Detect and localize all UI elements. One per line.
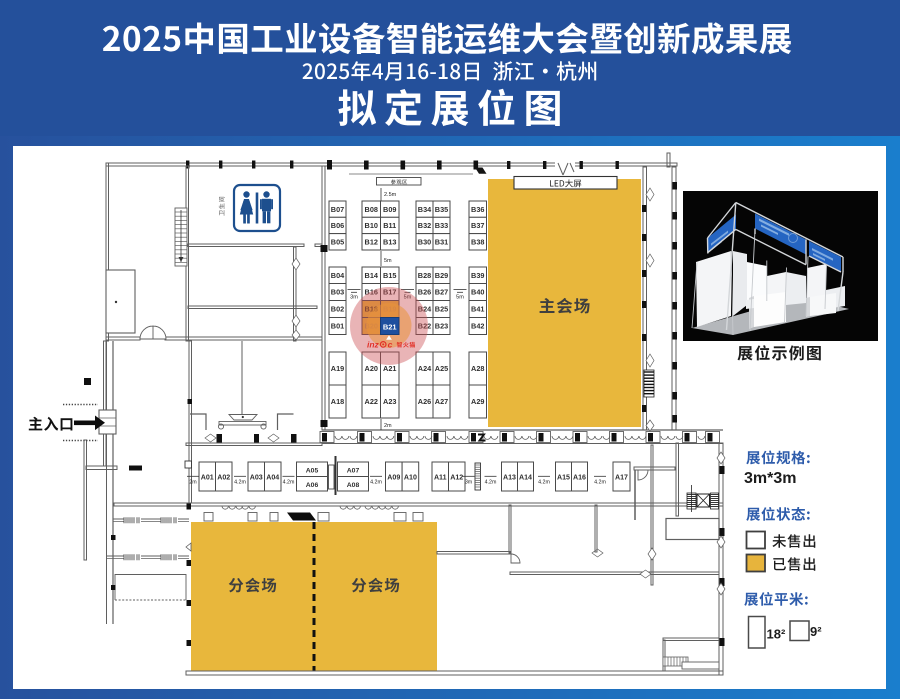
svg-text:3m: 3m: [465, 480, 473, 486]
svg-text:B09: B09: [383, 205, 396, 214]
svg-text:5m: 5m: [384, 258, 392, 264]
svg-text:18²: 18²: [767, 627, 786, 642]
svg-text:B29: B29: [435, 271, 448, 280]
svg-text:A22: A22: [365, 397, 378, 406]
svg-text:B13: B13: [383, 238, 396, 247]
svg-text:A13: A13: [503, 473, 516, 481]
svg-text:2m: 2m: [189, 480, 197, 486]
svg-text:B23: B23: [435, 322, 448, 331]
svg-text:A20: A20: [365, 364, 378, 373]
svg-text:B40: B40: [471, 288, 484, 297]
svg-text:A11: A11: [434, 473, 447, 481]
svg-text:B04: B04: [331, 271, 345, 280]
svg-text:A18: A18: [331, 397, 344, 406]
svg-text:B03: B03: [331, 288, 344, 297]
svg-text:B10: B10: [365, 221, 378, 230]
svg-text:B35: B35: [435, 205, 448, 214]
svg-text:4.2m: 4.2m: [485, 480, 497, 486]
svg-text:4.2m: 4.2m: [538, 480, 550, 486]
svg-text:B15: B15: [383, 271, 396, 280]
svg-text:A04: A04: [266, 473, 279, 481]
svg-text:A06: A06: [306, 482, 319, 489]
svg-text:A10: A10: [404, 473, 417, 481]
svg-text:A15: A15: [557, 473, 570, 481]
svg-text:A02: A02: [217, 473, 230, 481]
svg-text:4.2m: 4.2m: [234, 480, 246, 486]
svg-text:B12: B12: [365, 238, 378, 247]
svg-text:B34: B34: [418, 205, 432, 214]
svg-text:A19: A19: [331, 364, 344, 373]
svg-text:B25: B25: [435, 305, 448, 314]
svg-text:A17: A17: [615, 473, 628, 481]
svg-text:3m*3m: 3m*3m: [744, 470, 796, 487]
svg-text:2m: 2m: [384, 423, 392, 429]
svg-text:A07: A07: [347, 467, 360, 474]
svg-text:A29: A29: [471, 397, 484, 406]
svg-text:B36: B36: [471, 205, 484, 214]
svg-text:A09: A09: [387, 473, 400, 481]
svg-text:B02: B02: [331, 305, 344, 314]
svg-text:A12: A12: [450, 473, 463, 481]
svg-text:5m: 5m: [456, 295, 464, 301]
svg-text:B01: B01: [331, 322, 344, 331]
svg-text:A23: A23: [383, 397, 396, 406]
svg-text:B05: B05: [331, 238, 344, 247]
svg-text:A26: A26: [418, 397, 431, 406]
svg-text:9²: 9²: [810, 624, 822, 639]
svg-text:B28: B28: [418, 271, 431, 280]
svg-text:A03: A03: [250, 473, 263, 481]
svg-text:A08: A08: [347, 482, 360, 489]
svg-text:A28: A28: [471, 364, 484, 373]
svg-text:B27: B27: [435, 288, 448, 297]
svg-text:B32: B32: [418, 221, 431, 230]
svg-text:4.2m: 4.2m: [283, 480, 295, 486]
svg-text:A01: A01: [201, 473, 214, 481]
svg-text:B21: B21: [383, 323, 397, 332]
svg-text:c: c: [388, 340, 393, 350]
svg-text:B08: B08: [365, 205, 378, 214]
svg-text:A27: A27: [435, 397, 448, 406]
svg-text:A25: A25: [435, 364, 448, 373]
svg-text:B31: B31: [435, 238, 448, 247]
svg-text:B38: B38: [471, 238, 484, 247]
svg-text:2.5m: 2.5m: [384, 192, 397, 198]
svg-text:B33: B33: [435, 221, 448, 230]
svg-text:A16: A16: [573, 473, 586, 481]
svg-text:B07: B07: [331, 205, 344, 214]
svg-text:B30: B30: [418, 238, 431, 247]
svg-text:B41: B41: [471, 305, 484, 314]
svg-text:B06: B06: [331, 221, 344, 230]
svg-text:B37: B37: [471, 221, 484, 230]
svg-text:A21: A21: [383, 364, 396, 373]
svg-text:B14: B14: [365, 271, 379, 280]
svg-text:B42: B42: [471, 322, 484, 331]
svg-text:B39: B39: [471, 271, 484, 280]
svg-text:inz: inz: [367, 340, 380, 350]
svg-text:A05: A05: [306, 467, 319, 474]
svg-text:4.2m: 4.2m: [594, 480, 606, 486]
svg-text:4.2m: 4.2m: [370, 480, 382, 486]
svg-text:B11: B11: [383, 221, 396, 230]
svg-text:B26: B26: [418, 288, 431, 297]
svg-text:A14: A14: [519, 473, 532, 481]
svg-text:3m: 3m: [350, 295, 358, 301]
svg-text:A24: A24: [418, 364, 432, 373]
